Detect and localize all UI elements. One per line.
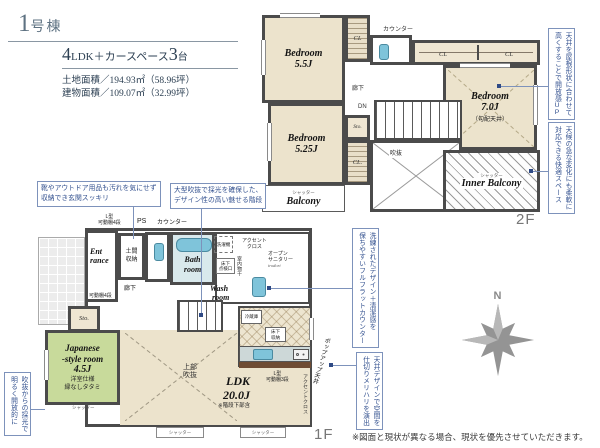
room-bedroom-5-25: Bedroom 5.25J xyxy=(268,103,345,185)
room-size: 7.0J xyxy=(481,102,499,114)
kitchen-sink-icon xyxy=(253,349,273,360)
upper-void-label: 上部 吹抜 xyxy=(183,364,197,381)
underfloor-hatch: 床下 点検口 xyxy=(216,258,235,274)
leader-dot xyxy=(329,363,333,367)
ldk-note: ※階段下部含 xyxy=(218,403,250,410)
leader-shoes xyxy=(133,203,134,239)
void-label: 吹抜 xyxy=(389,151,403,158)
balcony-name: Balcony xyxy=(287,196,321,207)
room-japanese: Japanese -style room 4.5J 洋室仕様 縁なしタタミ xyxy=(45,330,120,405)
leader-ceiling-design xyxy=(332,365,356,366)
building-number: 1 xyxy=(18,10,31,37)
shutter-box: シャッター xyxy=(156,427,204,438)
underfloor-storage: 床下 収納 xyxy=(265,327,286,342)
closet-divider xyxy=(477,45,479,60)
leader-weather xyxy=(532,171,548,172)
closet-label: CL xyxy=(354,35,362,42)
layout-car-unit: 台 xyxy=(178,52,188,63)
washroom-label: Wash xyxy=(210,284,228,293)
window-mark xyxy=(280,13,320,18)
vanity-sink-icon xyxy=(252,277,266,297)
callout-flat-counter: 洗練されたデザイン＋清潔感を 保ちやすいフルフラットカウンター xyxy=(352,228,379,348)
accent-cloth-label: アクセント クロス xyxy=(242,238,267,250)
shutter-box: シャッター xyxy=(240,427,286,438)
room-size: 5.25J xyxy=(295,144,318,156)
callout-weather: 天候の急な変化にも柔軟に 対応できる快適スペース xyxy=(548,122,575,214)
callout-ceiling-design: 天井デザインで空間を 仕切りメリハリを演出 xyxy=(356,352,383,430)
ps-label: PS xyxy=(137,218,146,226)
window-mark xyxy=(44,350,49,380)
callout-stairs: 大型吹抜で採光を確保した、 デザイン性の高い魅せる階段 xyxy=(170,183,266,209)
toilet-2f xyxy=(370,35,412,65)
callout-void-light: 吹抜からの採光で 明るく開放的に xyxy=(4,372,31,436)
shutter-label: シャッター xyxy=(72,405,95,411)
room-name: Bedroom xyxy=(471,91,509,103)
window-mark xyxy=(533,85,538,125)
layout-ldk-count: 4 xyxy=(62,44,71,64)
layout-ldk-text: LDK＋カースペース xyxy=(71,51,169,63)
building-area: 建物面積／109.07㎡（32.99坪） xyxy=(62,85,195,99)
entrance-label: rance xyxy=(90,256,109,265)
disclaimer: ※図面と現状が異なる場合、現状を優先させていただきます。 xyxy=(352,431,588,443)
toilet-icon xyxy=(154,243,164,261)
toilet-icon xyxy=(379,44,389,60)
ldk-name: LDK xyxy=(226,374,250,389)
stairs-2f xyxy=(374,100,462,140)
burner-icon xyxy=(296,353,299,356)
compass-north-label: N xyxy=(455,290,540,302)
stairs-dn-label: DN xyxy=(358,104,367,111)
hall-2f-label: 廊下 xyxy=(352,86,364,93)
window-mark xyxy=(261,40,266,75)
window-mark xyxy=(309,318,314,340)
compass-rose-icon xyxy=(460,302,536,378)
floor1-label: 1F xyxy=(314,426,334,443)
entrance-hall: Ent rance xyxy=(85,230,118,302)
washer-label: 洗濯機 xyxy=(217,242,231,247)
layout-line: 4LDK＋カースペース3台 xyxy=(62,44,188,65)
entrance-label: Ent xyxy=(90,247,102,256)
leader-stairs xyxy=(201,205,202,315)
inner-balcony-name: Inner Balcony xyxy=(460,178,524,190)
floorplan-flyer: 1号棟 4LDK＋カースペース3台 土地面積／194.93㎡（58.96坪） 建… xyxy=(0,0,600,448)
closet-2f-a: CL xyxy=(345,15,370,62)
leader-flat-counter xyxy=(270,288,352,289)
kitchen-cabinet xyxy=(239,362,311,368)
shelf-l3-label: L型 可動棚3段 xyxy=(266,371,289,383)
bathtub-icon xyxy=(176,238,212,252)
room-size: 5.5J xyxy=(295,59,313,71)
header-divider-2 xyxy=(62,68,238,69)
window-mark xyxy=(267,123,272,161)
leader-ceiling-up xyxy=(500,86,548,87)
closet-label: CL xyxy=(439,51,447,58)
kitchen-counter xyxy=(239,346,311,362)
bath-room: Bath room xyxy=(170,232,215,285)
layout-car-count: 3 xyxy=(169,44,178,64)
shelf4-label: 可動棚4段 xyxy=(89,293,112,299)
room-name: Bedroom xyxy=(288,133,326,145)
toilet-1f xyxy=(145,232,170,282)
storage-2f: Sto. xyxy=(345,115,370,140)
balcony-2f: シャッター Balcony xyxy=(262,185,345,212)
closet-2f-top: CL CL xyxy=(412,40,540,65)
leader-dot xyxy=(529,169,533,173)
indoor-drying-label: 室内物干 xyxy=(236,256,242,288)
doma-storage: 土間 収納 xyxy=(118,233,145,280)
hall-1f-label: 廊下 xyxy=(124,286,136,293)
leader-dot xyxy=(267,286,271,290)
storage-1f: Sto. xyxy=(68,306,100,332)
callout-ceiling-up: 天井を屋根形状に合わせて 高くすることで開放感UP xyxy=(548,28,575,120)
leader-dot xyxy=(199,313,203,317)
leader-dot xyxy=(497,84,501,88)
compass: N xyxy=(455,290,540,382)
window-mark xyxy=(460,63,510,68)
fridge-space: 冷蔵庫 xyxy=(241,310,262,324)
building-suffix: 号棟 xyxy=(31,20,63,35)
building-title: 1号棟 xyxy=(18,10,63,38)
land-area: 土地面積／194.93㎡（58.96坪） xyxy=(62,72,195,86)
storage-label: Sto. xyxy=(353,124,361,130)
callout-shoes: 靴やアウトドア用品も汚れを気にせず 収納でき玄関スッキリ xyxy=(37,181,161,207)
ldk-size: 20.0J xyxy=(223,388,250,403)
room-name: Bedroom xyxy=(285,48,323,60)
closet-2f-d: CL. xyxy=(345,140,370,185)
counter-1f-label: カウンター xyxy=(157,220,187,227)
inner-balcony: シャッター Inner Balcony xyxy=(443,150,540,212)
shelf-l4-label: L型 可動棚4段 xyxy=(98,214,121,226)
header-divider-1 xyxy=(8,41,238,42)
washer-space: 洗濯機 xyxy=(214,236,233,253)
sloped-ceiling-note: （勾配天井） xyxy=(472,117,508,124)
closet-label: CL. xyxy=(353,159,363,166)
open-sanitary-label: オープン サニタリー irodori xyxy=(268,251,293,268)
floor2-label: 2F xyxy=(516,211,536,228)
hanger-pipe-icon xyxy=(419,52,533,53)
closet-label: CL xyxy=(505,51,513,58)
stove-icon xyxy=(293,349,309,360)
counter-2f-label: カウンター xyxy=(383,27,413,34)
storage-label: Sto. xyxy=(79,315,89,322)
room-bedroom-5-5: Bedroom 5.5J xyxy=(262,15,345,103)
